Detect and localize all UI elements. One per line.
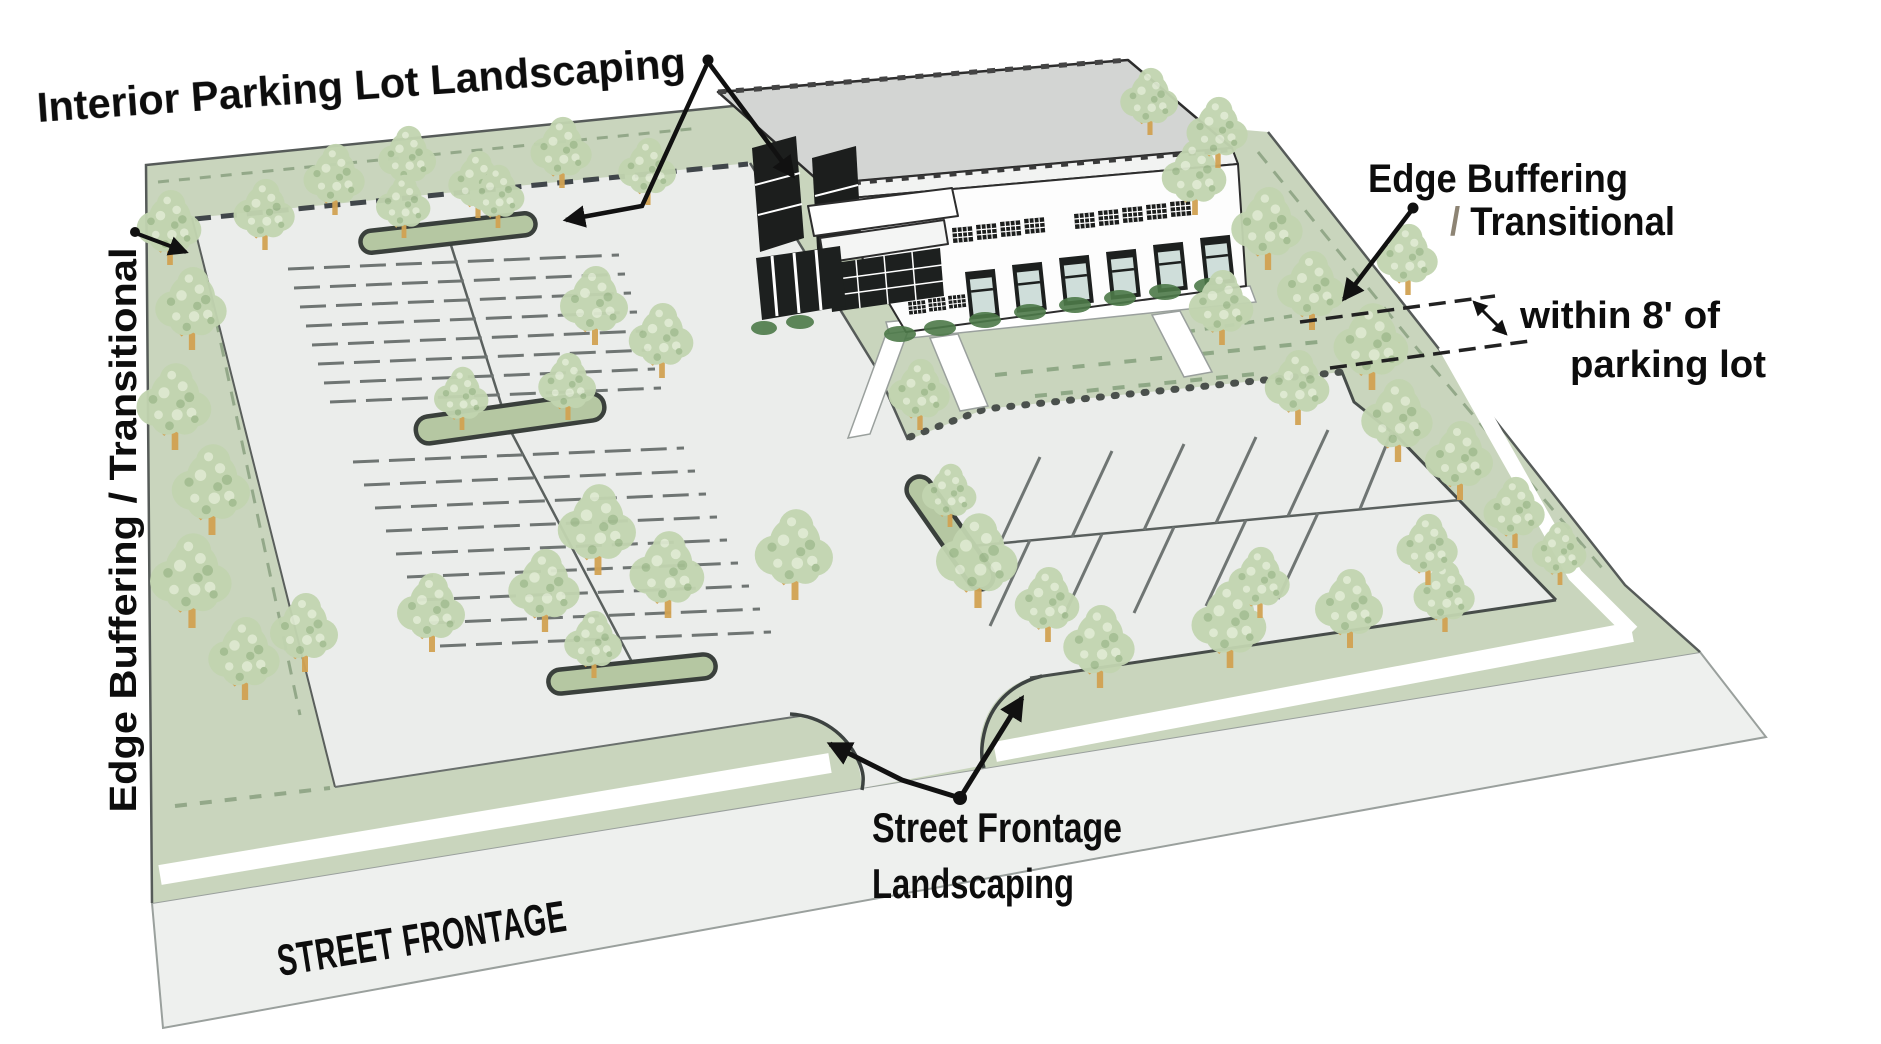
edge-buffering-right-label-line2: / Transitional <box>1450 200 1675 244</box>
interior-landscaping-label: Interior Parking Lot Landscaping <box>35 39 687 131</box>
within-8ft-label-line1: within 8' of <box>1519 295 1720 337</box>
dimension-arrow-8ft <box>1474 302 1506 334</box>
street-frontage-landscaping-label-line1: Street Frontage <box>872 804 1122 851</box>
street-frontage-landscaping-label-line2: Landscaping <box>872 860 1074 907</box>
edge-buffering-left-label: Edge Buffering / Transitional <box>103 248 145 813</box>
site-plan-figure: STREET FRONTAGE <box>0 0 1881 1044</box>
within-8ft-label-line2: parking lot <box>1570 344 1766 386</box>
gray-slash: / <box>1450 200 1470 244</box>
edge-buffering-right-label-line1: Edge Buffering <box>1368 157 1628 201</box>
site-plan-svg: STREET FRONTAGE <box>0 0 1881 1044</box>
